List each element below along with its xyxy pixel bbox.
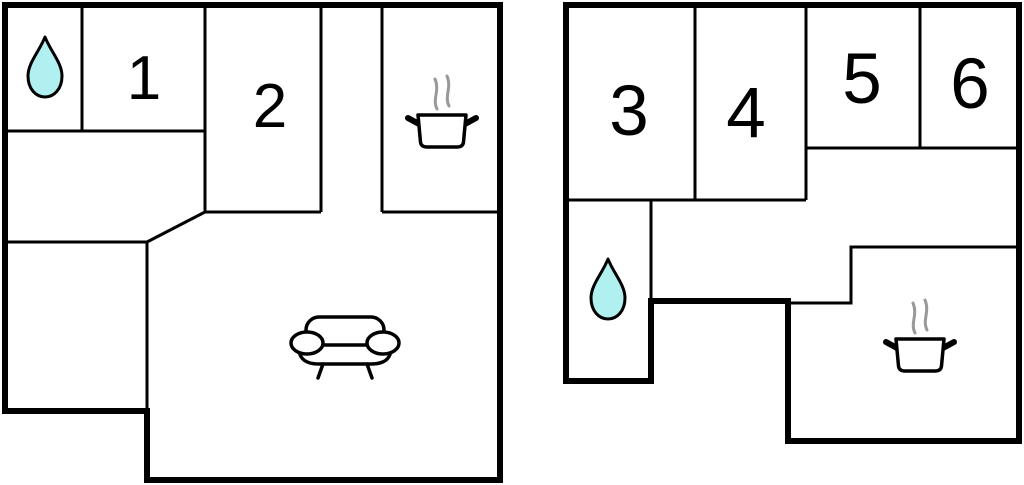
cooking-pot-icon xyxy=(408,76,476,147)
left-unit-interior-walls xyxy=(4,4,500,412)
pot-body xyxy=(418,115,466,147)
room-4-label: 4 xyxy=(716,77,776,149)
water-drop-icon xyxy=(28,37,62,97)
steam-line xyxy=(435,79,437,109)
room-6-label: 6 xyxy=(940,48,1000,120)
floor-plan: 1 2 3 4 5 6 xyxy=(0,0,1024,485)
room-2-label: 2 xyxy=(240,71,300,143)
cooking-pot-icon xyxy=(886,300,954,371)
steam-line xyxy=(447,76,449,106)
water-drop-icon xyxy=(591,259,625,319)
room-3-label: 3 xyxy=(599,75,659,147)
wall-diagonal xyxy=(147,212,205,242)
room-5-label: 5 xyxy=(832,43,892,115)
room-1-label: 1 xyxy=(114,43,174,115)
sofa-icon xyxy=(291,317,399,378)
steam-line xyxy=(925,300,927,330)
pot-body xyxy=(896,339,944,371)
steam-line xyxy=(913,303,915,333)
wall-kitchen-top xyxy=(788,247,1019,303)
